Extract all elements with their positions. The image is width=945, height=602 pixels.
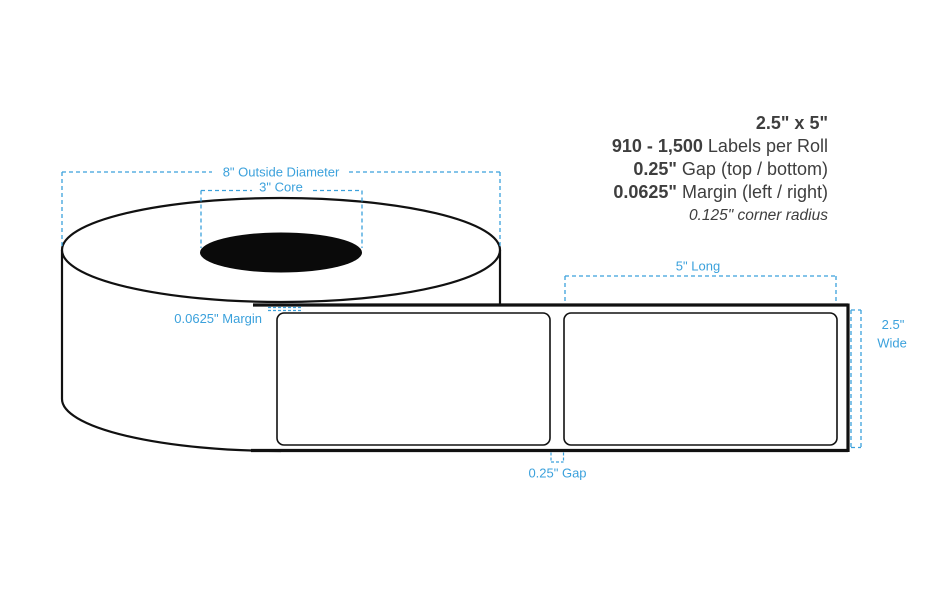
dim-margin-ticks bbox=[268, 308, 302, 311]
dim-wide: 2.5" Wide bbox=[851, 310, 907, 448]
dim-core-label: 3" Core bbox=[259, 180, 303, 195]
dim-long: 5" Long bbox=[565, 259, 836, 305]
dim-gap-lines bbox=[551, 453, 564, 463]
dim-margin-label: 0.0625" Margin bbox=[174, 311, 262, 326]
dim-long-lines bbox=[565, 276, 836, 304]
label-blank-2 bbox=[564, 313, 837, 445]
dim-long-label: 5" Long bbox=[676, 259, 720, 274]
label-blank-1 bbox=[277, 313, 550, 445]
dim-wide-lines bbox=[851, 310, 861, 448]
label-roll-spec-diagram: 2.5" x 5" 910 - 1,500 Labels per Roll 0.… bbox=[0, 0, 945, 602]
dim-wide-label-value: 2.5" bbox=[882, 317, 905, 332]
dim-gap: 0.25" Gap bbox=[528, 453, 586, 481]
roll-core-hole bbox=[200, 233, 362, 273]
roll-diagram-svg: 8" Outside Diameter 3" Core 0.0625" Marg… bbox=[0, 0, 945, 602]
dim-wide-label-word: Wide bbox=[877, 336, 907, 351]
dim-gap-label: 0.25" Gap bbox=[528, 466, 586, 481]
dim-outside-diameter-label: 8" Outside Diameter bbox=[223, 165, 340, 180]
roll-bottom-arc bbox=[62, 399, 281, 451]
